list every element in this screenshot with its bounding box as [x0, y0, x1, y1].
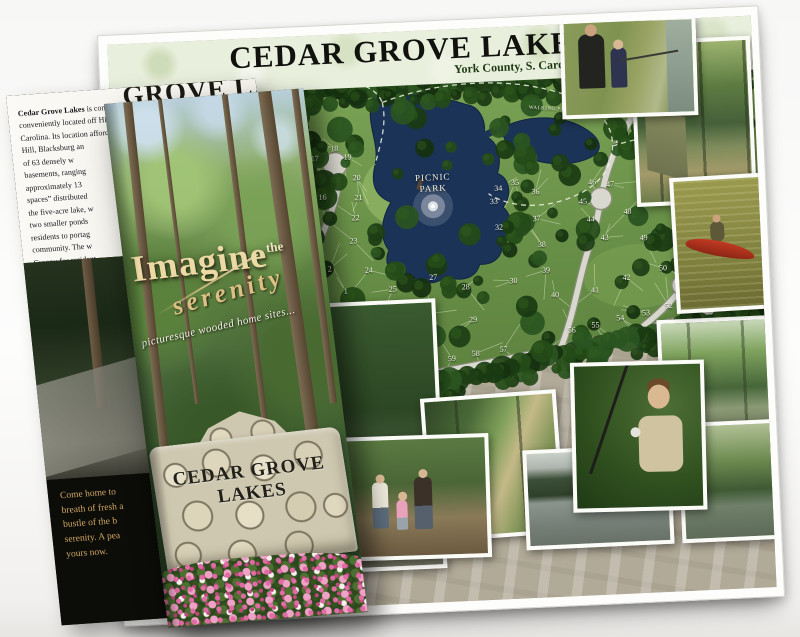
lot-number-38: 38 [538, 240, 546, 249]
boy-figure [610, 47, 627, 87]
headline-superscript: the [265, 238, 285, 255]
lot-number-25: 25 [389, 284, 397, 293]
photo-boy-fishing [570, 360, 708, 513]
lot-number-34: 34 [494, 184, 502, 193]
lot-number-30: 30 [509, 276, 517, 285]
lot-number-19: 19 [343, 152, 351, 161]
lot-number-28: 28 [462, 282, 470, 291]
lot-number-54: 54 [616, 313, 624, 322]
lot-number-56: 56 [568, 325, 576, 334]
mother-figure [372, 482, 389, 528]
page-background: PICNIC PARK WALKING PATH WALKING PATH et… [0, 0, 800, 637]
lot-number-53: 53 [642, 308, 650, 317]
lot-number-58: 58 [472, 349, 480, 358]
lot-number-49: 49 [639, 233, 647, 242]
boy-head [647, 384, 670, 409]
lot-number-43: 43 [600, 233, 608, 242]
lot-number-39: 39 [542, 266, 550, 275]
lot-number-42: 42 [622, 273, 630, 282]
lot-number-46: 46 [588, 177, 596, 186]
brochure: GROVE LAKES Cedar Grove Lakes is compris… [0, 0, 320, 637]
lot-number-48: 48 [623, 207, 631, 216]
photo-father-son-fishing [559, 16, 698, 120]
lot-number-50: 50 [659, 263, 667, 272]
paddler-figure [710, 221, 725, 242]
lot-number-59: 59 [448, 354, 456, 363]
creek-water [665, 19, 694, 112]
lot-number-18: 18 [330, 144, 338, 153]
creek [645, 106, 688, 181]
lot-number-1: 1 [344, 287, 348, 296]
lot-number-27: 27 [429, 273, 437, 282]
photo-family-walking [338, 433, 492, 562]
lot-number-21: 21 [354, 193, 362, 202]
lot-number-20: 20 [352, 173, 360, 182]
entrance-sign: CEDAR GROVE LAKES [148, 426, 358, 572]
lot-number-44: 44 [587, 214, 595, 223]
lot-number-40: 40 [551, 290, 559, 299]
lot-number-22: 22 [351, 213, 359, 222]
father-figure [578, 34, 606, 89]
lot-number-23: 23 [349, 236, 357, 245]
lot-number-2: 2 [328, 264, 332, 273]
fishing-rod [589, 360, 630, 475]
child-figure [396, 500, 408, 530]
lot-number-37: 37 [532, 214, 540, 223]
lot-number-33: 33 [490, 197, 498, 206]
father-figure [414, 477, 434, 530]
lot-number-32: 32 [495, 223, 503, 232]
lot-number-29: 29 [469, 315, 477, 324]
lot-number-41: 41 [591, 285, 599, 294]
boy-shirt [638, 415, 683, 472]
lot-number-24: 24 [365, 266, 373, 275]
lot-number-36: 36 [531, 187, 539, 196]
photo-red-canoe [669, 172, 775, 314]
lot-number-52: 52 [665, 301, 673, 310]
lot-number-45: 45 [579, 197, 587, 206]
lot-number-35: 35 [511, 178, 519, 187]
lot-number-55: 55 [591, 320, 599, 329]
lot-number-47: 47 [606, 180, 614, 189]
lot-number-57: 57 [499, 345, 507, 354]
